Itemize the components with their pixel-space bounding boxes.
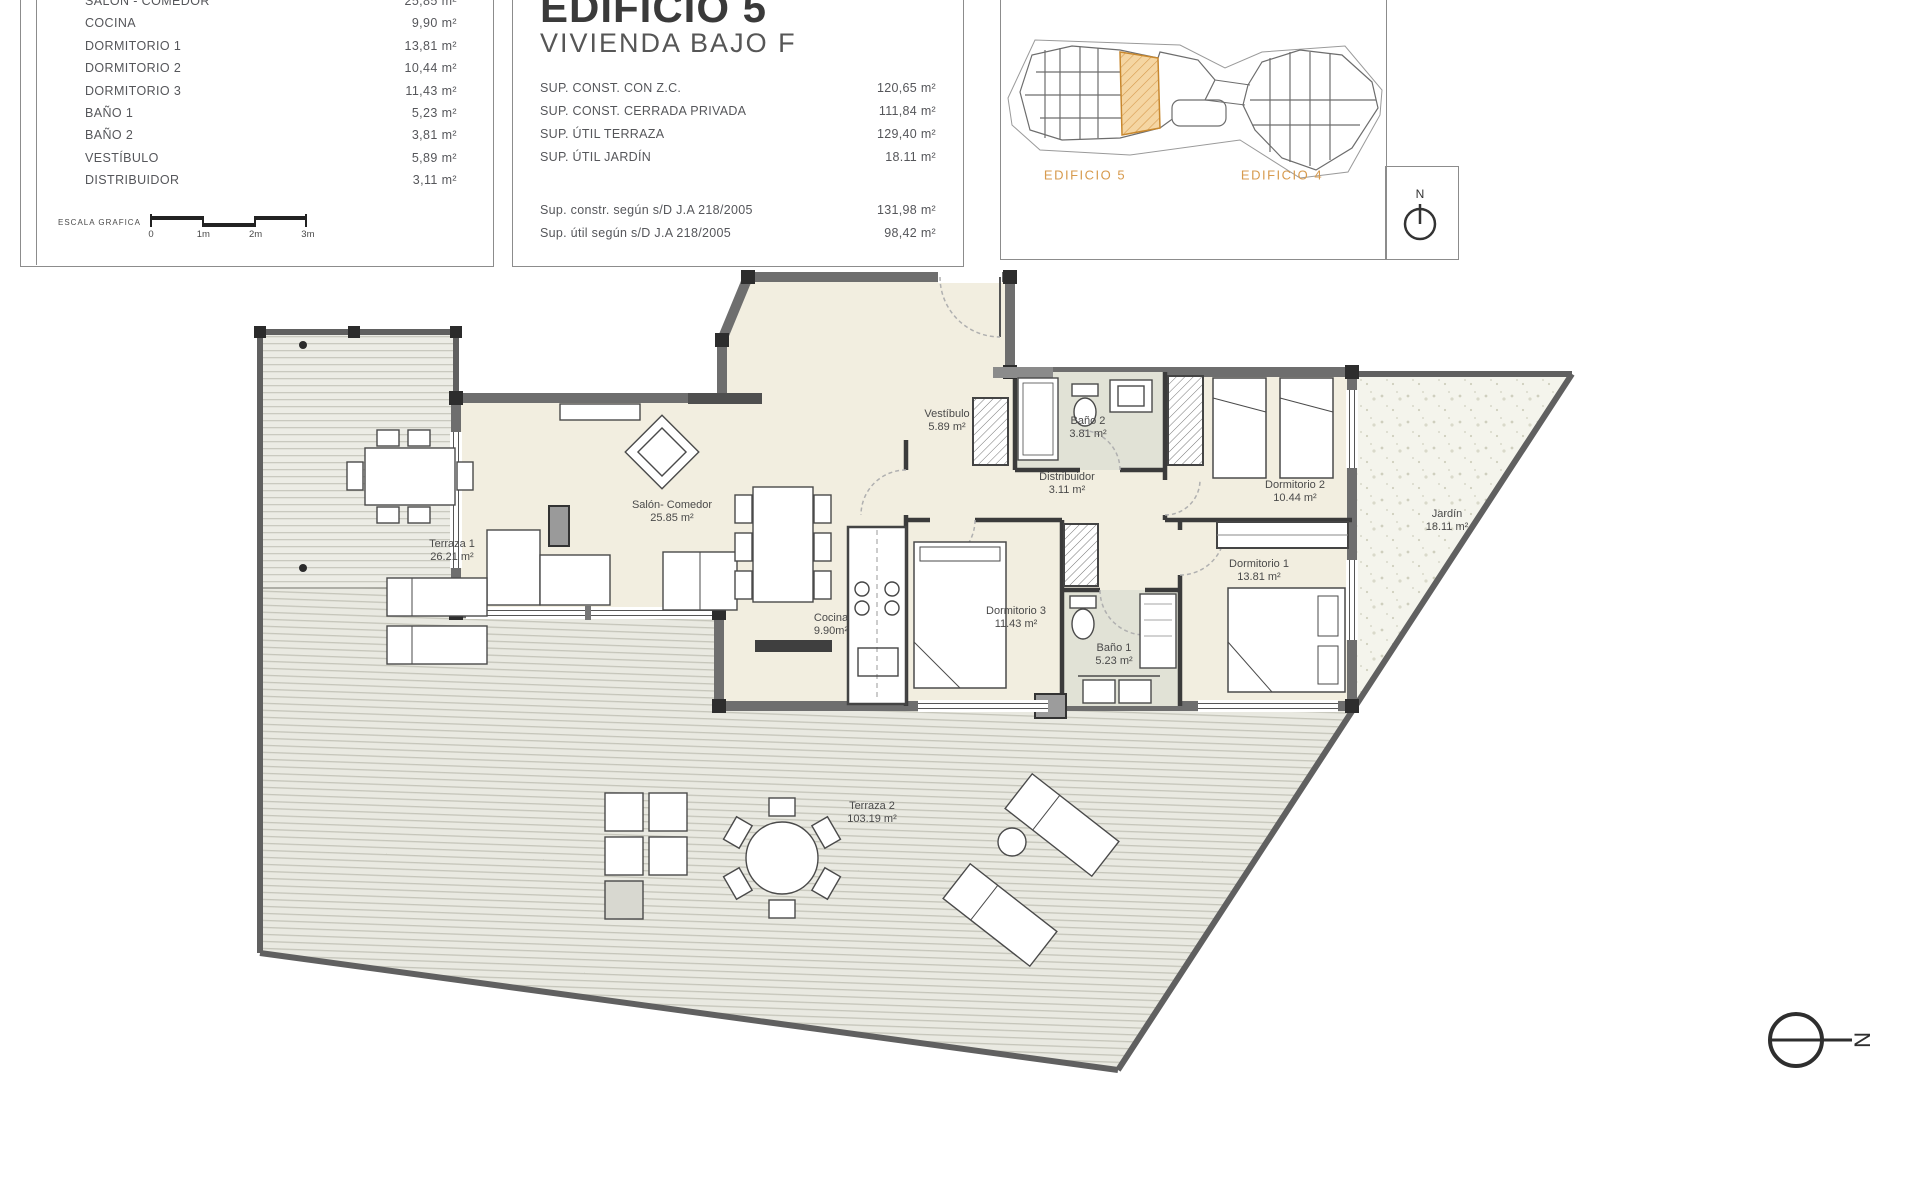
room-label: Salón- Comedor 25.85 m² xyxy=(632,499,712,525)
room-label-name: Terraza 1 xyxy=(429,538,475,551)
scale-tick: 2m xyxy=(249,229,262,240)
room-label-name: Distribuidor xyxy=(1039,471,1095,484)
table-row: DISTRIBUIDOR 3,11 m² xyxy=(85,169,457,191)
room-label-name: Dormitorio 3 xyxy=(986,605,1046,618)
table-row: SALÓN - COMEDOR 25,85 m² xyxy=(85,0,457,12)
table-row: DORMITORIO 3 11,43 m² xyxy=(85,80,457,102)
scale-tick: 1m xyxy=(197,229,210,240)
room-label-name: Baño 1 xyxy=(1095,642,1132,655)
site-label-edificio-5: EDIFICIO 5 xyxy=(1044,168,1126,183)
room-label: Vestíbulo 5.89 m² xyxy=(924,408,969,434)
room-label: Distribuidor 3.11 m² xyxy=(1039,471,1095,497)
room-label: Baño 1 5.23 m² xyxy=(1095,642,1132,668)
sheet-subtitle: VIVIENDA BAJO F xyxy=(540,28,797,59)
north-compass-box xyxy=(1385,166,1459,260)
room-label-name: Baño 2 xyxy=(1069,415,1106,428)
room-label-area: 11.43 m² xyxy=(986,618,1046,631)
room-name: COCINA xyxy=(85,16,136,30)
room-name: DORMITORIO 2 xyxy=(85,61,181,75)
table-row: BAÑO 1 5,23 m² xyxy=(85,102,457,124)
area-label: SUP. ÚTIL JARDÍN xyxy=(540,150,651,164)
room-summary-panel-inner-line xyxy=(36,0,37,265)
room-label-name: Dormitorio 1 xyxy=(1229,558,1289,571)
room-area: 13,81 m² xyxy=(404,39,457,53)
room-name: VESTÍBULO xyxy=(85,151,159,165)
scale-tick: 0 xyxy=(148,229,153,240)
room-label-area: 9.90m² xyxy=(814,625,848,638)
room-area: 5,23 m² xyxy=(412,106,457,120)
room-area: 11,43 m² xyxy=(405,84,457,98)
room-label-area: 5.23 m² xyxy=(1095,655,1132,668)
area-row: SUP. CONST. CON Z.C. 120,65 m² xyxy=(540,79,936,97)
room-area: 3,11 m² xyxy=(413,173,457,187)
scale-tick: 3m xyxy=(301,229,314,240)
room-area: 3,81 m² xyxy=(412,128,457,142)
room-label-area: 13.81 m² xyxy=(1229,571,1289,584)
room-label: Terraza 2 103.19 m² xyxy=(847,800,897,826)
room-label-area: 10.44 m² xyxy=(1265,492,1325,505)
room-label-area: 3.81 m² xyxy=(1069,428,1106,441)
room-area: 10,44 m² xyxy=(404,61,457,75)
room-label-name: Salón- Comedor xyxy=(632,499,712,512)
room-label: Baño 2 3.81 m² xyxy=(1069,415,1106,441)
legal-row: Sup. constr. según s/D J.A 218/2005 131,… xyxy=(540,201,936,219)
room-label: Dormitorio 2 10.44 m² xyxy=(1265,479,1325,505)
table-row: VESTÍBULO 5,89 m² xyxy=(85,147,457,169)
legal-label: Sup. constr. según s/D J.A 218/2005 xyxy=(540,203,753,217)
room-label-name: Jardín xyxy=(1426,508,1469,521)
floor-plan-sheet: N xyxy=(0,0,1920,1200)
room-label-name: Cocina xyxy=(814,612,848,625)
room-label-area: 18.11 m² xyxy=(1426,521,1469,534)
site-plan-panel xyxy=(1000,0,1387,260)
room-label: Terraza 1 26.21 m² xyxy=(429,538,475,564)
legal-value: 131,98 m² xyxy=(877,203,936,217)
site-label-edificio-4: EDIFICIO 4 xyxy=(1241,168,1323,183)
scale-bar-label: ESCALA GRAFICA xyxy=(58,218,141,227)
area-value: 111,84 m² xyxy=(879,104,936,118)
area-value: 18.11 m² xyxy=(885,150,936,164)
wall-accent xyxy=(993,367,1053,378)
area-label: SUP. CONST. CON Z.C. xyxy=(540,81,681,95)
room-area: 9,90 m² xyxy=(412,16,457,30)
room-label: Cocina 9.90m² xyxy=(814,612,848,638)
room-name: DORMITORIO 1 xyxy=(85,39,181,53)
legal-label: Sup. útil según s/D J.A 218/2005 xyxy=(540,226,731,240)
room-label-area: 3.11 m² xyxy=(1039,484,1095,497)
area-value: 120,65 m² xyxy=(877,81,936,95)
table-row: DORMITORIO 2 10,44 m² xyxy=(85,57,457,79)
area-row: SUP. CONST. CERRADA PRIVADA 111,84 m² xyxy=(540,102,936,120)
room-label-area: 103.19 m² xyxy=(847,813,897,826)
table-row: DORMITORIO 1 13,81 m² xyxy=(85,35,457,57)
room-name: DISTRIBUIDOR xyxy=(85,173,179,187)
room-name: DORMITORIO 3 xyxy=(85,84,181,98)
room-area: 5,89 m² xyxy=(412,151,457,165)
room-name: BAÑO 1 xyxy=(85,106,133,120)
room-label-name: Terraza 2 xyxy=(847,800,897,813)
area-row: SUP. ÚTIL TERRAZA 129,40 m² xyxy=(540,125,936,143)
area-value: 129,40 m² xyxy=(877,127,936,141)
room-label-name: Dormitorio 2 xyxy=(1265,479,1325,492)
wall-accent xyxy=(688,393,762,404)
area-label: SUP. ÚTIL TERRAZA xyxy=(540,127,664,141)
room-label: Jardín 18.11 m² xyxy=(1426,508,1469,534)
room-area: 25,85 m² xyxy=(404,0,457,8)
room-label: Dormitorio 3 11.43 m² xyxy=(986,605,1046,631)
room-label-area: 26.21 m² xyxy=(429,551,475,564)
room-label: Dormitorio 1 13.81 m² xyxy=(1229,558,1289,584)
page-north-letter: N xyxy=(1850,1032,1875,1048)
table-row: COCINA 9,90 m² xyxy=(85,12,457,34)
legal-value: 98,42 m² xyxy=(884,226,936,240)
table-row: BAÑO 2 3,81 m² xyxy=(85,124,457,146)
room-name: BAÑO 2 xyxy=(85,128,133,142)
room-label-area: 5.89 m² xyxy=(924,421,969,434)
room-label-area: 25.85 m² xyxy=(632,512,712,525)
legal-row: Sup. útil según s/D J.A 218/2005 98,42 m… xyxy=(540,224,936,242)
area-label: SUP. CONST. CERRADA PRIVADA xyxy=(540,104,746,118)
room-name: SALÓN - COMEDOR xyxy=(85,0,210,8)
area-row: SUP. ÚTIL JARDÍN 18.11 m² xyxy=(540,148,936,166)
page-north-compass: N xyxy=(1770,1014,1875,1066)
room-label-name: Vestíbulo xyxy=(924,408,969,421)
